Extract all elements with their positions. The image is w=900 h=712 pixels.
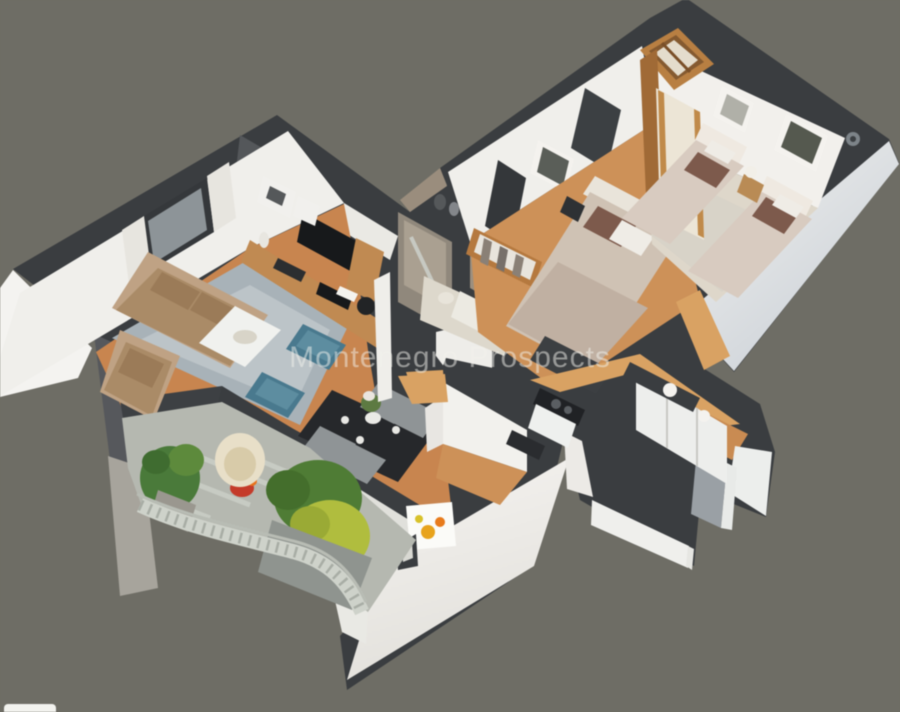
svg-text:Montenegro Prospects: Montenegro Prospects bbox=[289, 341, 611, 374]
